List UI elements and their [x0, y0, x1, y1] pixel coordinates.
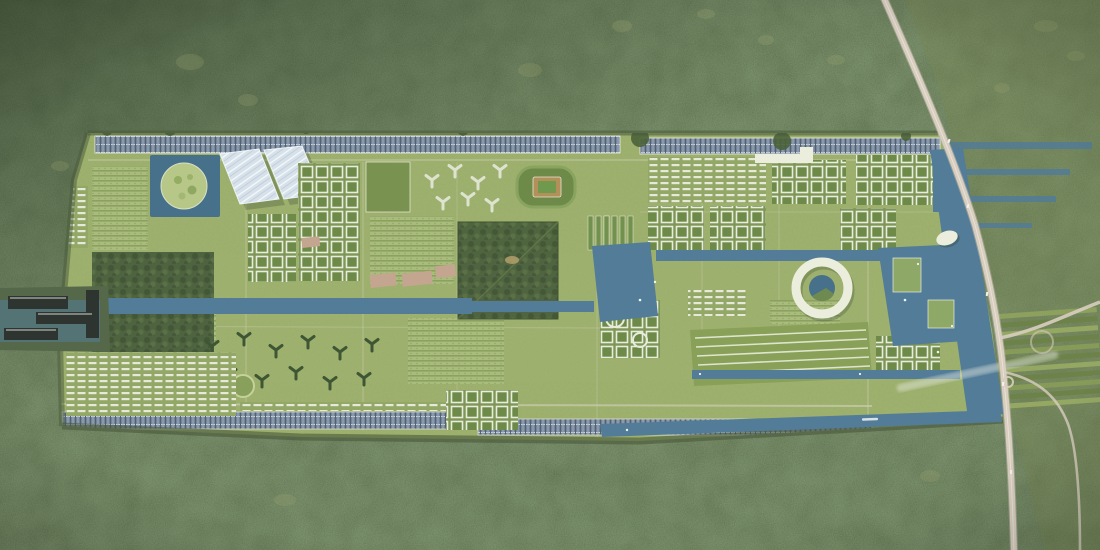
aerial-render-stage	[0, 0, 1100, 550]
vignette-overlay	[0, 0, 1100, 550]
aerial-render	[0, 0, 1100, 550]
